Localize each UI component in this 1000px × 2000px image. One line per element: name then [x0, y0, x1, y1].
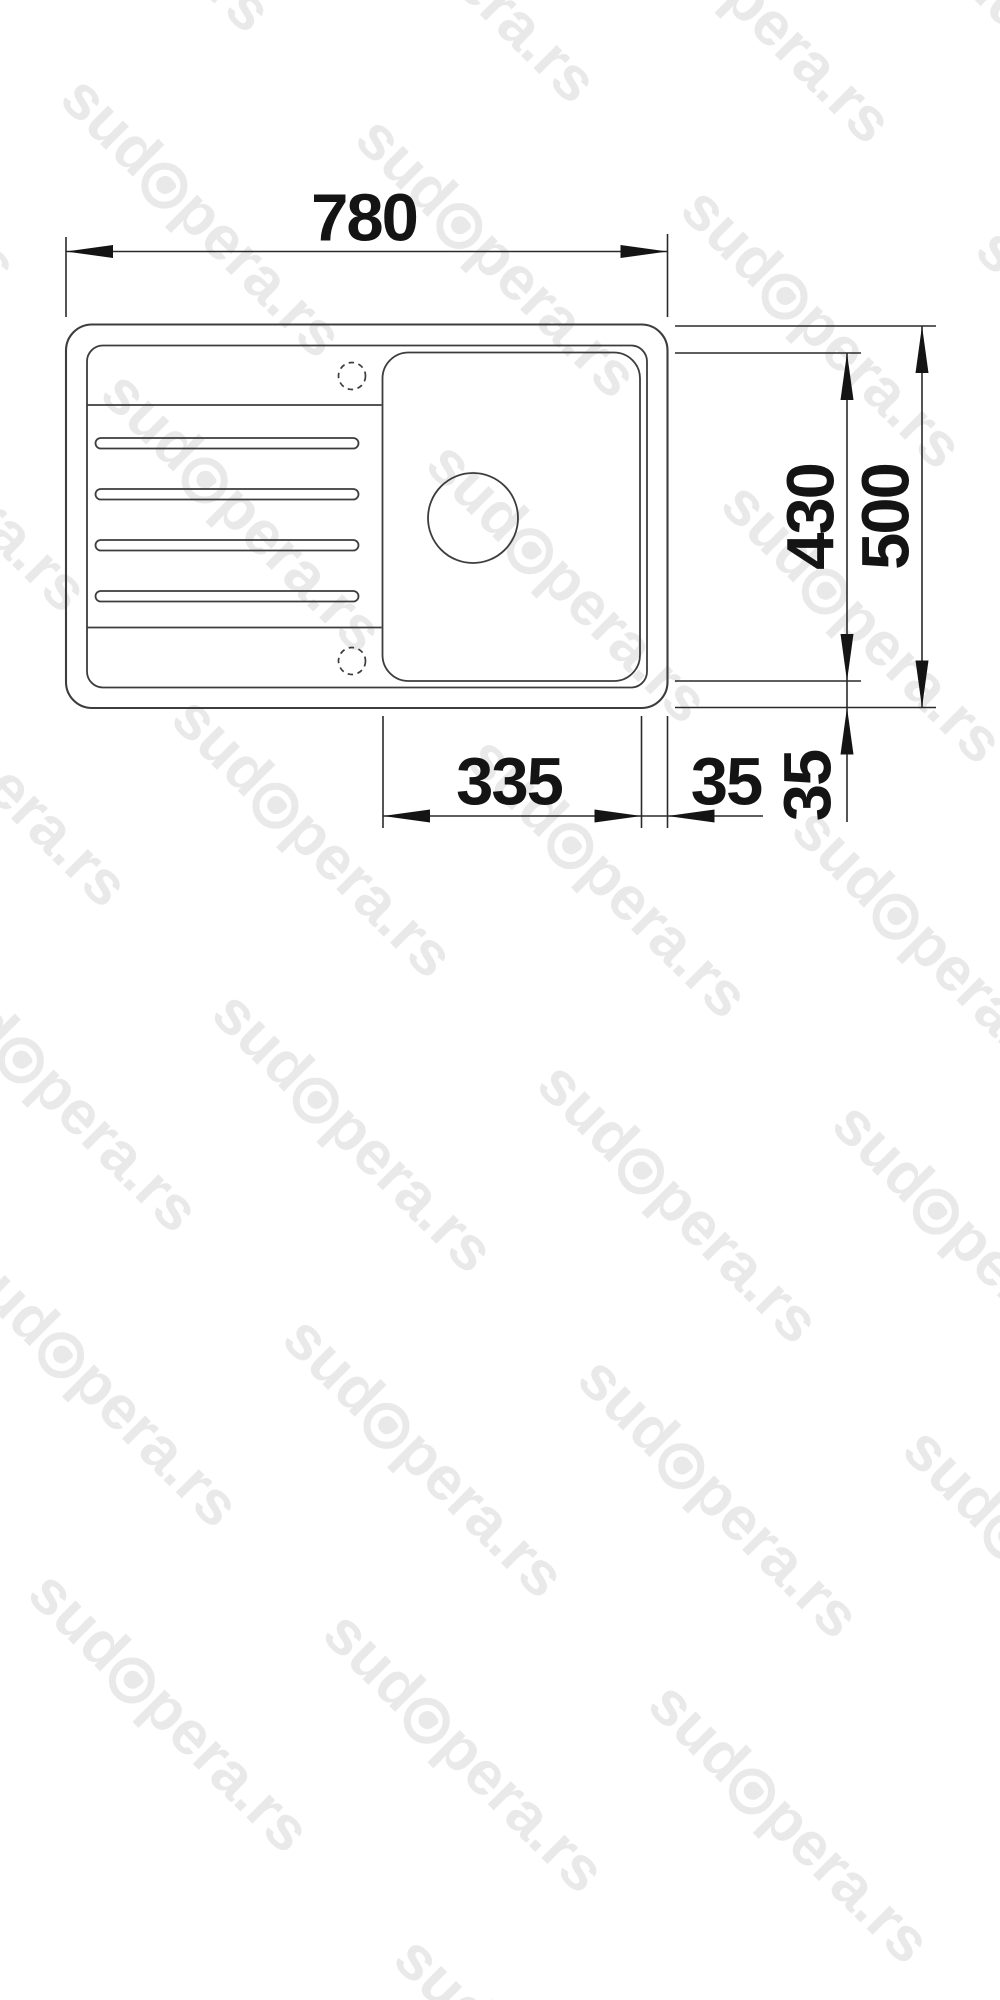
dimension-label-bowl-width: 335 [456, 749, 562, 816]
watermark-text: sudpera.rs [567, 1346, 870, 1649]
watermark-text: sudpera.rs [272, 1306, 575, 1609]
droplet-logo-icon [904, 1179, 969, 1244]
watermark-suffix: pera.rs [18, 1051, 213, 1246]
watermark-suffix: pera.rs [383, 1416, 578, 1611]
arrowhead-up [841, 353, 854, 400]
droplet-logo-icon [100, 1648, 165, 1713]
droplet-logo-icon [974, 1505, 1000, 1570]
dimension-label-overall-depth: 500 [853, 464, 920, 570]
drain-groove-2 [96, 489, 359, 500]
watermark-prefix: sud [381, 1923, 508, 2000]
arrowhead-down [841, 634, 854, 681]
droplet-logo-icon [354, 1394, 419, 1459]
bowl-group [383, 353, 641, 682]
drain-groove-3 [96, 540, 359, 551]
dimension-label-overall-width: 780 [311, 185, 417, 252]
watermark-text: sudpera.rs [821, 1092, 1000, 1395]
droplet-logo-icon [284, 1068, 349, 1133]
drainboard-group [87, 363, 382, 675]
watermark-prefix: sud [524, 1048, 651, 1175]
droplet-logo-icon [395, 1689, 460, 1754]
arrowhead-left [383, 810, 430, 823]
watermark-text: sudpera.rs [527, 1051, 830, 1354]
sink-rim-inner-edge [87, 346, 647, 688]
arrowhead-up [916, 326, 929, 373]
dimension-label-bowl-depth: 430 [778, 464, 845, 570]
droplet-logo-icon [609, 1139, 674, 1204]
droplet-logo-icon [29, 1323, 94, 1388]
watermark-prefix: sud [310, 1598, 437, 1725]
drain-hole [428, 473, 518, 563]
sink-outer-edge [66, 325, 668, 709]
watermark-text: sudpera.rs [383, 1926, 686, 2000]
tap-hole-bottom [339, 648, 366, 675]
watermark-suffix: pera.rs [638, 1162, 833, 1357]
tap-hole-top [339, 363, 366, 390]
drain-groove-1 [96, 438, 359, 449]
watermark-prefix: sud [565, 1343, 692, 1470]
arrowhead-down [916, 661, 929, 708]
droplet-logo-icon [0, 1028, 54, 1093]
watermark-prefix: sud [819, 1089, 946, 1216]
watermark-text: sudpera.rs [312, 1601, 615, 1904]
arrowhead-up [841, 708, 854, 755]
watermark-prefix: sud [270, 1303, 397, 1430]
arrowhead-right [595, 810, 642, 823]
watermark-prefix: sud [890, 1414, 1000, 1541]
watermark-text: sudpera.rs [17, 1560, 320, 1863]
droplet-logo-icon [649, 1434, 714, 1499]
watermark-prefix: sud [636, 1669, 763, 1796]
watermark-text: sudpera.rs [0, 1235, 250, 1538]
watermark-suffix: pera.rs [58, 1346, 253, 1541]
watermark-prefix: sud [0, 1232, 71, 1359]
sink-outline-group [66, 325, 668, 709]
watermark-text: sudpera.rs [201, 981, 504, 1284]
droplet-logo-icon [720, 1759, 785, 1824]
drain-groove-4 [96, 591, 359, 602]
watermark-suffix: pera.rs [749, 1782, 944, 1977]
watermark-prefix: sud [15, 1558, 142, 1685]
watermark-suffix: pera.rs [129, 1671, 324, 1866]
watermark-suffix: pera.rs [424, 1711, 619, 1906]
watermark-suffix: pera.rs [313, 1091, 508, 1286]
arrowhead-right [621, 245, 668, 258]
watermark-suffix: pera.rs [933, 1202, 1000, 1397]
watermark-text: sudpera.rs [638, 1671, 941, 1974]
watermark-suffix: pera.rs [678, 1457, 873, 1652]
watermark-text: sudpera.rs [892, 1417, 1000, 1720]
bowl-edge [383, 353, 641, 682]
dimension-label-rim-right: 35 [691, 749, 762, 816]
dimension-label-rim-bottom: 35 [775, 751, 842, 822]
arrowhead-left [66, 245, 113, 258]
